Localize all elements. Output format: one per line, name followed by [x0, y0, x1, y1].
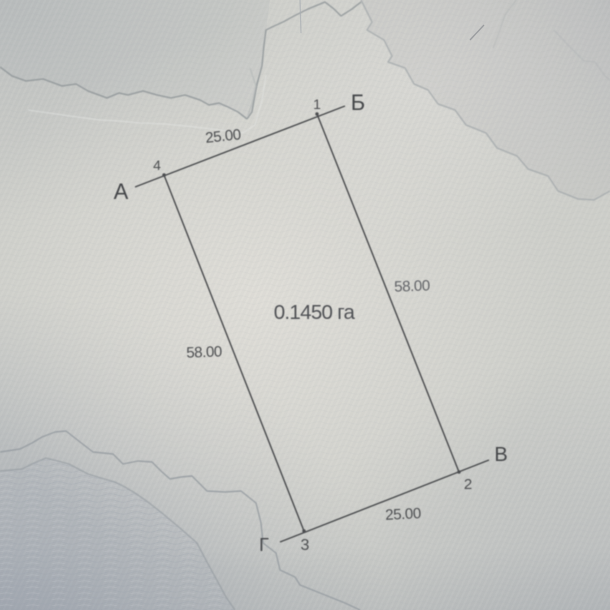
svg-text:25.00: 25.00: [385, 505, 421, 524]
svg-text:1: 1: [313, 96, 321, 112]
svg-text:А: А: [114, 179, 129, 204]
svg-text:0.1450 га: 0.1450 га: [274, 301, 356, 324]
svg-text:Б: Б: [351, 90, 365, 115]
svg-text:2: 2: [464, 476, 472, 493]
svg-text:3: 3: [301, 537, 310, 554]
svg-text:58.00: 58.00: [186, 343, 222, 361]
svg-text:В: В: [494, 444, 507, 466]
svg-text:58.00: 58.00: [394, 277, 430, 295]
svg-text:Г: Г: [259, 535, 269, 555]
svg-text:4: 4: [153, 157, 161, 173]
